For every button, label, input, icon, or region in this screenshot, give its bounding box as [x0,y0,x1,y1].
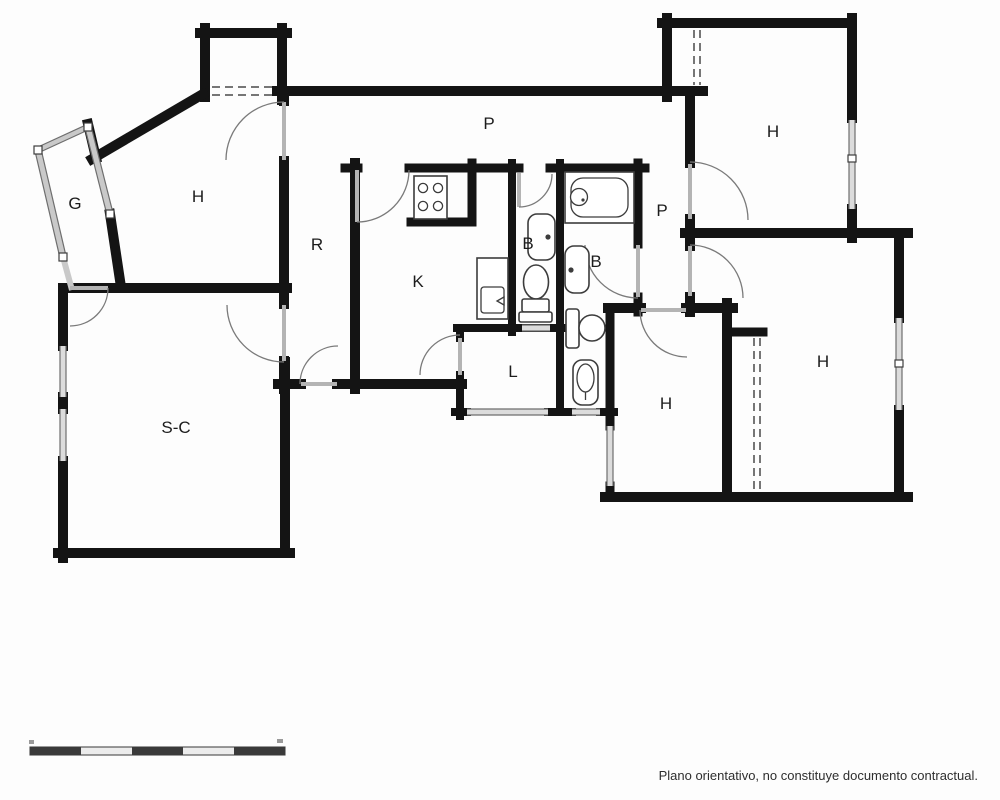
room-label-habitacion-bottom-right: H [817,352,829,371]
door-lavadero [420,335,460,375]
window-b1-l [522,325,550,331]
door-kitchen [357,170,409,222]
room-label-lavadero: L [508,362,517,381]
room-label-bano-1: B [522,234,533,253]
room-label-habitacion-bottom-middle: H [660,394,672,413]
room-label-cocina: K [412,272,424,291]
room-label-salon-comedor: S-C [161,418,190,437]
floor-plan: G H R K B B P P H L S-C H H Plano orient… [0,0,1000,800]
glazing-node [106,210,114,218]
shower-head-icon [571,189,588,206]
room-label-habitacion-top-right: H [767,122,779,141]
door-bath-1 [519,173,552,207]
bath1-toilet-icon [519,265,552,322]
scale-bar [29,739,285,755]
floor-plan-drawing: G H R K B B P P H L S-C H H [0,0,1000,800]
entrance-door [300,346,338,384]
scale-end-label-right [277,739,283,743]
kitchen-sink-icon [477,258,508,319]
glazing-node [59,253,67,261]
glazing-node [34,146,42,154]
window-h-tr-2 [849,162,855,209]
disclaimer-text: Plano orientativo, no constituye documen… [659,768,978,783]
window-sc-1 [60,346,66,397]
room-label-pasillo-top: P [483,114,494,133]
window-h-br-1 [896,318,902,362]
room-label-recibidor: R [311,235,323,254]
scale-segment-dark [30,747,81,755]
window-b2 [572,409,600,415]
window-h-br-2 [896,366,902,410]
scale-segment-dark [234,747,285,755]
bath2-toilet-icon [566,309,605,348]
glazing-node [895,360,903,367]
bidet-icon [573,360,598,405]
room-label-bano-2: B [590,252,601,271]
window-sc-2 [60,409,66,461]
door-h-bottom-middle [640,310,687,357]
window-l [467,409,548,415]
room-label-habitacion-top-left: H [192,187,204,206]
door-galeria [70,288,108,326]
bath2-sink-icon [565,246,589,293]
room-label-galeria: G [68,194,81,213]
door-h-top-left [226,102,284,160]
scale-segment-dark [132,747,183,755]
scale-end-label-left [29,740,34,744]
window-h-mid [607,426,613,486]
door-sc [227,305,284,362]
window-h-tr-1 [849,120,855,157]
glazing-node [848,155,856,162]
bathtub-icon [565,172,634,223]
door-h-bottom-right [690,245,743,298]
door-h-top-right [690,162,748,220]
room-label-pasillo-right: P [656,201,667,220]
stove-icon [414,176,447,219]
glazing-node [84,123,92,131]
interior-walls [110,91,763,497]
doors [70,102,748,384]
